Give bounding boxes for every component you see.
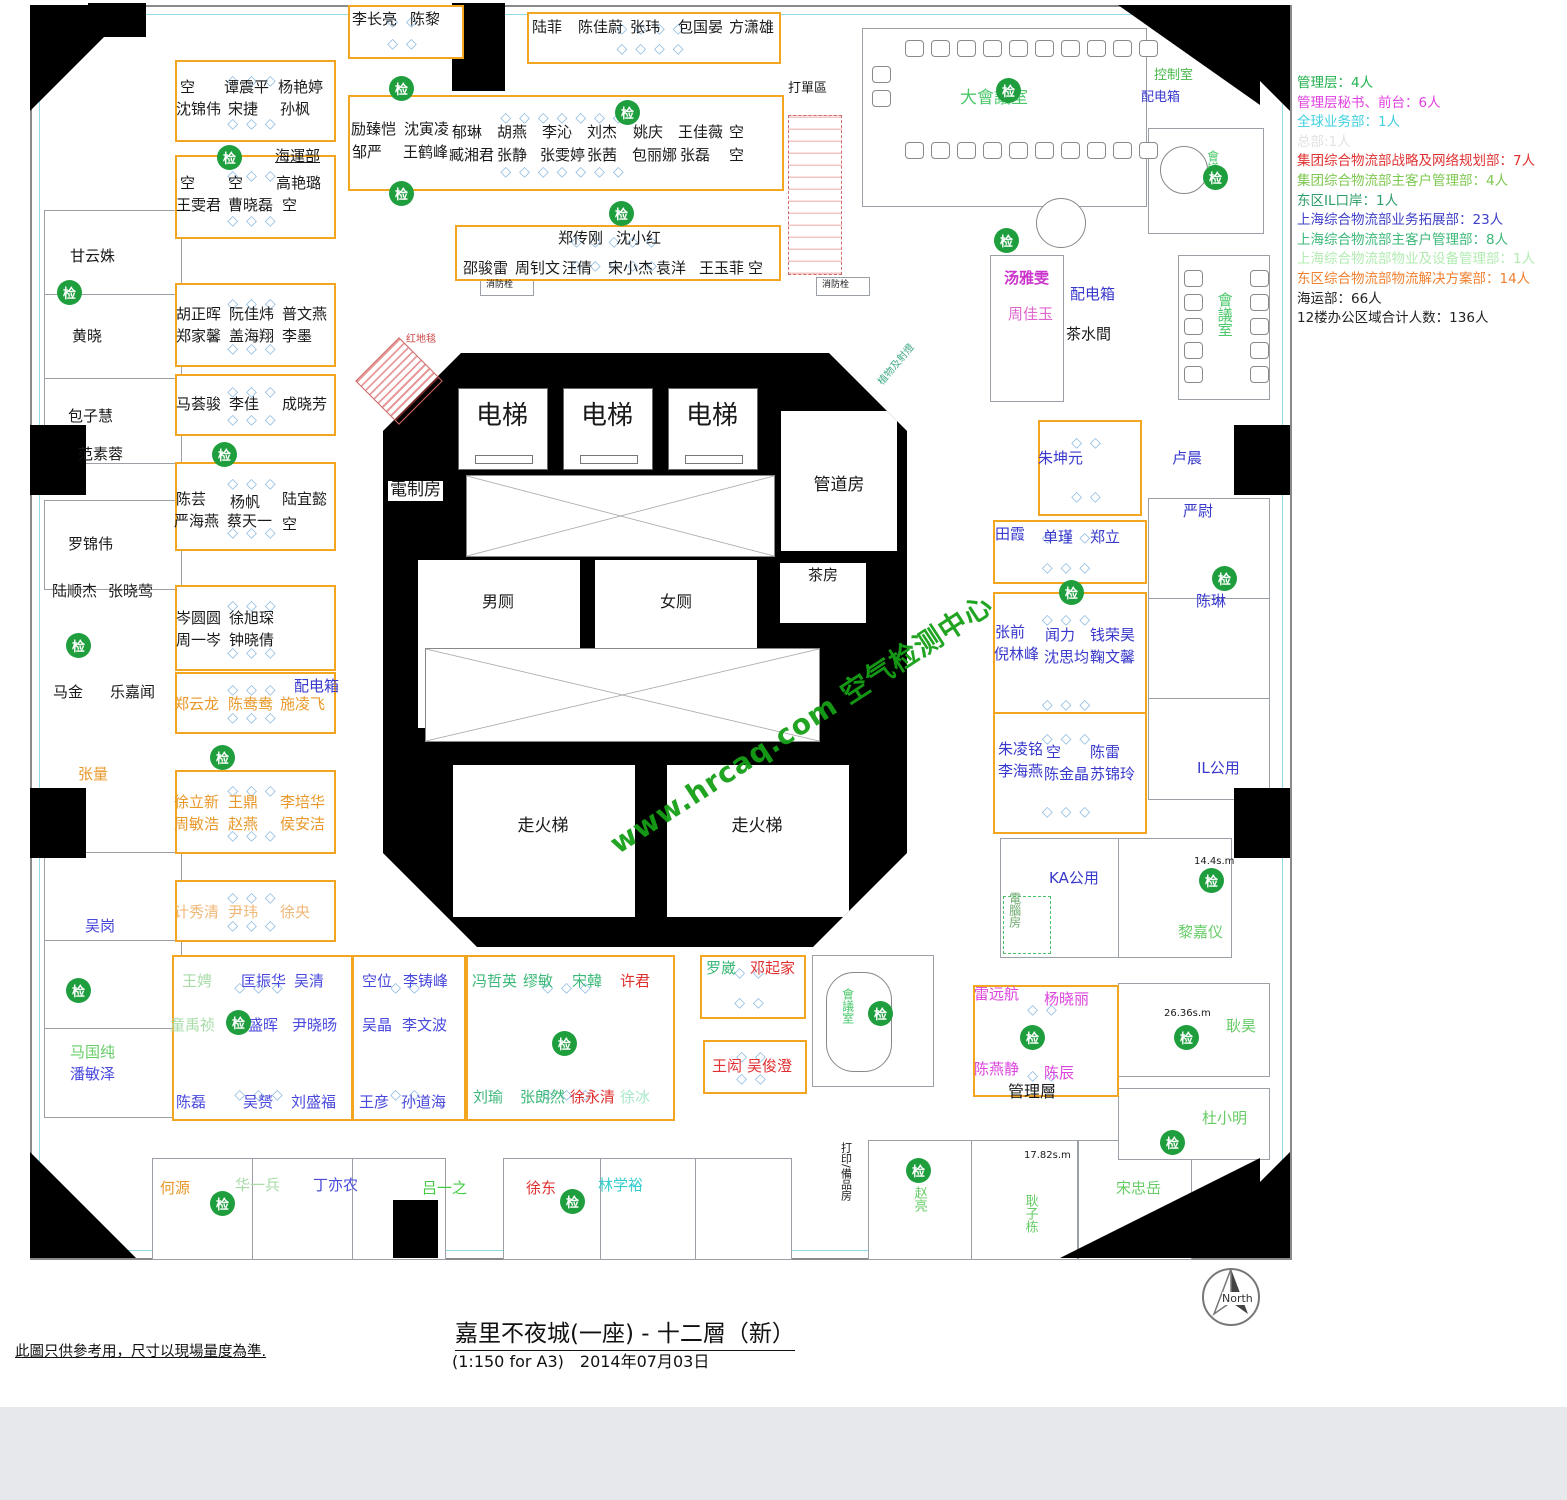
plan-label: 陈磊: [176, 1095, 206, 1111]
legend-item: 12楼办公区域合计人数：136人: [1297, 309, 1565, 329]
plan-label: 胡正晖: [176, 307, 221, 323]
office-room: [503, 1158, 602, 1260]
plan-label: 张量: [78, 767, 108, 783]
legend-item: 全球业务部：1人: [1297, 113, 1565, 133]
plan-label: 赵亮: [912, 1186, 926, 1212]
plan-label: 郑立: [1090, 530, 1120, 546]
footer-strip: [0, 1407, 1567, 1500]
plan-label: 严尉: [1183, 504, 1213, 520]
inspection-badge: 检: [994, 228, 1019, 253]
plan-label: 吴赟: [243, 1095, 273, 1111]
chair-diamond-icons: ◇◇◇: [995, 804, 1145, 820]
plan-label: 杨艳婷: [278, 80, 323, 96]
chair-icon: [1184, 366, 1203, 383]
plan-label: 26.36s.m: [1164, 1009, 1211, 1020]
plan-label: 陈辰: [1044, 1066, 1074, 1082]
plan-label: 郑家馨: [176, 329, 221, 345]
plan-label: 电梯: [458, 403, 546, 430]
chair-icon: [1139, 40, 1158, 57]
plan-label: 周佳玉: [1008, 307, 1053, 323]
plan-label: 计秀清: [174, 905, 219, 921]
plan-label: 管道房: [781, 477, 897, 495]
legend-item: 东区综合物流部物流解决方案部：14人: [1297, 270, 1565, 290]
plan-label: 茶水間: [1066, 327, 1111, 343]
chair-icon: [1035, 40, 1054, 57]
plan-label: 陈金晶: [1044, 767, 1089, 783]
plan-label: 郑云龙: [174, 697, 219, 713]
chair-icon: [1087, 142, 1106, 159]
chair-icon: [905, 142, 924, 159]
plan-label: 徐冰: [620, 1090, 650, 1106]
plan-label: 黄晓: [72, 329, 102, 345]
office-room: [1118, 1088, 1270, 1160]
plan-label: 陈芸: [176, 492, 206, 508]
plan-label: 李培华: [280, 795, 325, 811]
chair-icon: [1009, 40, 1028, 57]
plan-label: 吴俊澄: [747, 1059, 792, 1075]
plan-label: 刘盛福: [291, 1095, 336, 1111]
plan-label: 电梯: [668, 403, 756, 430]
round-table: [1160, 146, 1208, 194]
plan-label: 空: [282, 517, 297, 533]
plan-label: 電腦房: [1008, 892, 1021, 928]
legend-item: 集团综合物流部战略及网络规划部：7人: [1297, 152, 1565, 172]
plan-label: 控制室: [1154, 69, 1193, 83]
inspection-badge: 检: [1203, 165, 1228, 190]
plan-label: 杨帆: [230, 495, 260, 511]
plan-label: 陈佳蔚: [578, 20, 623, 36]
fire-stair: [453, 765, 635, 917]
legend-item: 管理层：4人: [1297, 74, 1565, 94]
column-block: [1234, 425, 1290, 495]
chair-diamond-icons: ◇◇◇: [995, 697, 1145, 713]
plan-label: 王鼎: [228, 795, 258, 811]
office-room: [152, 1158, 254, 1260]
plan-label: 配电箱: [1070, 287, 1115, 303]
plan-label: 阮佳炜: [229, 307, 274, 323]
plan-label: 张朗然: [520, 1090, 565, 1106]
north-label: North: [1222, 1292, 1253, 1305]
inspection-badge: 检: [1174, 1025, 1199, 1050]
plan-label: 普文燕: [282, 307, 327, 323]
plan-label: 张静: [497, 148, 527, 164]
plan-label: 王鹤峰: [403, 145, 448, 161]
plan-label: 谭震平: [224, 80, 269, 96]
plan-label: 空: [282, 198, 297, 214]
plan-label: 李沁: [542, 125, 572, 141]
plan-label: 林学裕: [598, 1178, 643, 1194]
plan-label: 17.82s.m: [1024, 1151, 1071, 1162]
print-area-cabinets: [788, 115, 842, 275]
inspection-badge: 检: [210, 745, 235, 770]
chair-diamond-icons: ◇◇: [350, 36, 462, 52]
plan-label: 赵燕: [228, 817, 258, 833]
plan-label: 消防栓: [822, 281, 849, 290]
inspection-badge: 检: [389, 181, 414, 206]
floor-plan-page: www.hrcaq.com 空气检测中心 管理层：4人管理层秘书、前台：6人全球…: [0, 0, 1567, 1500]
plan-label: 周钊文: [515, 261, 560, 277]
chair-row: [905, 40, 1158, 57]
chair-diamond-icons: ◇◇: [1040, 489, 1140, 505]
column-block: [1234, 788, 1290, 858]
plan-label: 陈雷: [1090, 745, 1120, 761]
legend-item: 集团综合物流部主客户管理部：4人: [1297, 172, 1565, 192]
column-block: [30, 788, 86, 858]
legend-item: 上海综合物流部物业及设备管理部：1人: [1297, 250, 1565, 270]
chair-icon: [1250, 366, 1269, 383]
chair-icon: [1250, 342, 1269, 359]
plan-label: 汤雅雯: [1004, 271, 1049, 287]
plan-label: 陈黎: [410, 12, 440, 28]
chair-icon: [1250, 294, 1269, 311]
plan-label: 缪敏: [523, 974, 553, 990]
chair-icon: [1061, 40, 1080, 57]
inspection-badge: 检: [226, 1010, 251, 1035]
plan-label: 女厕: [595, 594, 757, 611]
plan-label: 沈锦伟: [176, 102, 221, 118]
plan-label: 闻力: [1045, 628, 1075, 644]
inspection-badge: 检: [615, 100, 640, 125]
plan-label: 耿昊: [1226, 1019, 1256, 1035]
desk-pod: ◇◇◇◇◇◇: [175, 283, 336, 367]
plan-label: 田霞: [995, 527, 1025, 543]
chair-icon: [931, 40, 950, 57]
inspection-badge: 检: [66, 633, 91, 658]
plan-label: 打單區: [788, 82, 827, 96]
plan-label: 苏锦玲: [1090, 767, 1135, 783]
plan-label: 王玉菲: [699, 261, 744, 277]
legend-item: 海运部：66人: [1297, 290, 1565, 310]
plan-label: 會議室: [841, 988, 854, 1024]
plan-label: 红地毯: [406, 335, 436, 346]
plan-label: 郁琳: [452, 125, 482, 141]
chair-icon: [1009, 142, 1028, 159]
plan-label: 孙道海: [401, 1095, 446, 1111]
plan-label: 李文波: [402, 1018, 447, 1034]
plan-label: 尹晓旸: [292, 1018, 337, 1034]
inspection-badge: 检: [1160, 1130, 1185, 1155]
plan-label: 孙枫: [280, 102, 310, 118]
plan-label: 施凌飞: [280, 697, 325, 713]
plan-label: 邵骏雷: [463, 261, 508, 277]
chair-icon: [957, 40, 976, 57]
plan-label: 电梯: [563, 403, 651, 430]
plan-label: 杜小明: [1202, 1111, 1247, 1127]
plan-label: 岑圆圆: [176, 611, 221, 627]
inspection-badge: 检: [906, 1158, 931, 1183]
plan-label: 李长亮: [352, 12, 397, 28]
plan-label: 冯哲英: [472, 974, 517, 990]
plan-label: 王佳薇: [678, 125, 723, 141]
disclaimer-note: 此圖只供參考用，尺寸以現場量度為準.: [15, 1340, 266, 1361]
plan-label: 走火梯: [667, 818, 847, 836]
chair-row: [905, 142, 1158, 159]
legend-item: 总部:1人: [1297, 133, 1565, 153]
plan-label: 黎嘉仪: [1178, 925, 1223, 941]
chair-icon: [1061, 142, 1080, 159]
chair-diamond-icons: ◇◇◇: [177, 412, 334, 428]
plan-label: 空: [180, 176, 195, 192]
inspection-badge: 检: [609, 201, 634, 226]
column-block: [88, 3, 146, 37]
inspection-badge: 检: [57, 280, 82, 305]
plan-label: 空: [1046, 745, 1061, 761]
plan-label: 匡振华: [241, 974, 286, 990]
plan-label: 徐央: [280, 905, 310, 921]
plan-label: 侯安洁: [280, 817, 325, 833]
department-legend: 管理层：4人管理层秘书、前台：6人全球业务部：1人总部:1人集团综合物流部战略及…: [1297, 74, 1565, 329]
plan-label: 徐旭琛: [229, 611, 274, 627]
plan-label: 吴岗: [85, 919, 115, 935]
plan-label: 空位: [362, 974, 392, 990]
plan-label: 童禹祯: [170, 1018, 215, 1034]
desk-pod: ◇◇◇◇◇◇: [175, 770, 336, 854]
floor-plan-canvas: www.hrcaq.com 空气检测中心 管理层：4人管理层秘书、前台：6人全球…: [0, 0, 1567, 1405]
office-room: [600, 1158, 697, 1260]
chair-diamond-icons: ◇◇◇◇◇◇◇: [350, 164, 782, 180]
plan-label: 卢晨: [1172, 451, 1202, 467]
plan-label: 會議室: [1216, 292, 1232, 337]
inspection-badge: 检: [212, 442, 237, 467]
plan-label: 打印/備品房: [840, 1142, 852, 1201]
plan-label: 倪林峰: [994, 647, 1039, 663]
plan-label: 刘杰: [587, 125, 617, 141]
plan-label: 陆顺杰: [52, 584, 97, 600]
plan-label: 沈寅凌: [404, 122, 449, 138]
plan-label: 张磊: [680, 148, 710, 164]
plan-label: 邹严: [352, 145, 382, 161]
chair-icon: [1035, 142, 1054, 159]
plan-label: 方潇雄: [729, 20, 774, 36]
chair-icon: [1250, 270, 1269, 287]
office-room: [44, 294, 182, 380]
plan-label: 朱凌铭: [998, 742, 1043, 758]
inspection-badge: 检: [560, 1189, 585, 1214]
inspection-badge: 检: [389, 76, 414, 101]
plan-label: 包丽娜: [632, 148, 677, 164]
plan-label: 宋韓: [572, 974, 602, 990]
plan-label: 张茜: [587, 148, 617, 164]
plan-label: 消防栓: [486, 281, 513, 290]
inspection-badge: 检: [1212, 566, 1237, 591]
plan-label: 张玮: [630, 20, 660, 36]
plan-label: 宋忠岳: [1116, 1181, 1161, 1197]
plan-label: 马国纯: [70, 1045, 115, 1061]
chair-icon: [983, 40, 1002, 57]
legend-item: 上海综合物流部主客户管理部：8人: [1297, 231, 1565, 251]
chair-diamond-icons: ◇◇◇◇: [529, 41, 779, 57]
plan-label: 李佳: [229, 397, 259, 413]
chair-diamond-icons: ◇◇◇: [177, 116, 334, 132]
legend-item: 管理层秘书、前台：6人: [1297, 94, 1565, 114]
chair-icon: [931, 142, 950, 159]
plan-label: 徐立新: [174, 795, 219, 811]
desk-pod: ◇◇◇◇◇◇: [175, 585, 336, 671]
plan-label: 空: [729, 125, 744, 141]
office-room: [44, 940, 182, 1030]
chair-icon: [1087, 40, 1106, 57]
chair-diamond-icons: ◇◇◇: [177, 213, 334, 229]
plan-label: 严海燕: [174, 514, 219, 530]
plan-label: 刘瑜: [473, 1090, 503, 1106]
plan-label: 耿子栋: [1023, 1194, 1037, 1233]
chair-icon: [1250, 318, 1269, 335]
office-room: [695, 1158, 792, 1260]
plan-label: 成晓芳: [282, 397, 327, 413]
chair-icon: [1184, 318, 1203, 335]
chair-row: [872, 66, 891, 107]
plan-label: 姚庆: [633, 125, 663, 141]
plan-label: 单瑾: [1043, 530, 1073, 546]
plan-label: 何源: [160, 1181, 190, 1197]
plan-label: 14.4s.m: [1194, 857, 1234, 868]
inspection-badge: 检: [1020, 1025, 1045, 1050]
plan-label: 海運部: [275, 149, 320, 165]
plan-label: IL公用: [1197, 761, 1240, 777]
plan-label: 陈燕静: [974, 1062, 1019, 1078]
plan-label: 宋小杰: [608, 261, 653, 277]
plan-label: 蔡天一: [227, 514, 272, 530]
plan-label: 陈鸯鸯: [228, 697, 273, 713]
chair-icon: [905, 40, 924, 57]
inspection-badge: 检: [1059, 580, 1084, 605]
plan-label: 罗崴: [706, 961, 736, 977]
office-room: [1148, 698, 1270, 800]
inspection-badge: 检: [996, 78, 1021, 103]
inspection-badge: 检: [210, 1191, 235, 1216]
chair-icon: [1184, 342, 1203, 359]
plan-label: 空: [228, 176, 243, 192]
plan-label: 钟晓倩: [229, 633, 274, 649]
plan-label: 吕一之: [422, 1181, 467, 1197]
plan-label: 電制房: [388, 481, 443, 501]
plan-label: 曹晓磊: [228, 198, 273, 214]
plan-label: 乐嘉闻: [110, 685, 155, 701]
plan-label: 钱荣昊: [1090, 628, 1135, 644]
chair-icon: [1184, 270, 1203, 287]
chair-row: [1250, 270, 1269, 383]
plan-label: 李海燕: [998, 764, 1043, 780]
plan-label: 茶房: [780, 568, 866, 584]
plan-label: 高艳璐: [276, 176, 321, 192]
plan-label: 沈小红: [616, 231, 661, 247]
plan-label: 郑传刚: [558, 231, 603, 247]
chair-icon: [872, 66, 891, 83]
inspection-badge: 检: [66, 978, 91, 1003]
plan-label: 朱坤元: [1038, 451, 1083, 467]
chair-icon: [1113, 40, 1132, 57]
chair-row: [1184, 270, 1203, 383]
plan-label: 马金: [53, 685, 83, 701]
plan-label: 李墨: [282, 329, 312, 345]
chair-icon: [957, 142, 976, 159]
plan-label: KA公用: [1049, 871, 1099, 887]
inspection-badge: 检: [1199, 868, 1224, 893]
plan-label: 汪倩: [562, 261, 592, 277]
chair-icon: [872, 90, 891, 107]
plan-label: 罗锦伟: [68, 537, 113, 553]
plan-label: 尹玮: [228, 905, 258, 921]
plan-label: 周敏浩: [174, 817, 219, 833]
plan-label: 张雯婷: [540, 148, 585, 164]
plan-label: 空: [748, 261, 763, 277]
plan-label: 张晓莺: [108, 584, 153, 600]
plan-label: 杨晓丽: [1044, 992, 1089, 1008]
chair-icon: [1184, 294, 1203, 311]
chair-icon: [1113, 142, 1132, 159]
plan-label: 甘云姝: [70, 249, 115, 265]
plan-label: 吴晶: [362, 1018, 392, 1034]
desk-pod: ◇◇◇◇: [1038, 420, 1142, 516]
plan-label: 宋捷: [228, 102, 258, 118]
inspection-badge: 检: [552, 1031, 577, 1056]
plan-label: 管理層: [1008, 1084, 1056, 1101]
chair-diamond-icons: ◇◇: [702, 995, 804, 1011]
lobby-crossed-area: [466, 475, 775, 557]
plan-label: 邓起家: [750, 961, 795, 977]
plan-label: 沈思均: [1044, 650, 1089, 666]
plan-label: 配电箱: [1141, 91, 1180, 105]
plan-label: 李铸峰: [403, 974, 448, 990]
chair-diamond-icons: ◇◇◇: [995, 560, 1145, 576]
plan-label: 袁洋: [656, 261, 686, 277]
plan-label: 盛晖: [248, 1018, 278, 1034]
plan-label: 盖海翔: [229, 329, 274, 345]
plan-label: 包国晏: [678, 20, 723, 36]
chair-icon: [1139, 142, 1158, 159]
plan-label: 男厕: [418, 594, 578, 611]
legend-item: 东区IL口岸：1人: [1297, 192, 1565, 212]
plan-label: 励臻恺: [351, 122, 396, 138]
plan-label: 包子慧: [68, 409, 113, 425]
plan-label: 王娉: [182, 974, 212, 990]
plan-label: 潘敏泽: [70, 1067, 115, 1083]
plan-label: 张前: [995, 625, 1025, 641]
plan-label: 华一兵: [235, 1178, 280, 1194]
plan-label: 配电箱: [294, 679, 339, 695]
round-table: [1036, 198, 1086, 248]
plan-label: 胡燕: [497, 125, 527, 141]
plan-label: 王闳: [712, 1059, 742, 1075]
legend-item: 上海综合物流部业务拓展部：23人: [1297, 211, 1565, 231]
plan-label: 陈琳: [1196, 594, 1226, 610]
plan-label: 空: [729, 148, 744, 164]
plan-label: 空: [180, 80, 195, 96]
office-room: [252, 1158, 354, 1260]
plan-label: 许君: [620, 974, 650, 990]
plan-label: 陆菲: [532, 20, 562, 36]
inspection-badge: 检: [868, 1001, 893, 1026]
drawing-title: 嘉里不夜城(一座) - 十二層（新）: [455, 1314, 795, 1351]
plan-label: 雷远航: [974, 987, 1019, 1003]
plan-label: 王彦: [359, 1095, 389, 1111]
office-room: [1148, 598, 1270, 700]
plan-label: 王雯君: [176, 198, 221, 214]
chair-icon: [983, 142, 1002, 159]
plan-label: 周一岑: [176, 633, 221, 649]
plan-label: 吴清: [294, 974, 324, 990]
inspection-badge: 检: [217, 145, 242, 170]
plan-label: 马荟骏: [176, 397, 221, 413]
plan-label: 徐东: [526, 1181, 556, 1197]
drawing-scale-date: (1:150 for A3) 2014年07月03日: [452, 1348, 709, 1372]
plan-label: 徐永清: [570, 1090, 615, 1106]
plan-label: 鞠文馨: [1090, 650, 1135, 666]
plan-label: 范素蓉: [78, 447, 123, 463]
plan-label: 陆宜懿: [282, 492, 327, 508]
plan-label: 臧湘君: [449, 148, 494, 164]
plan-label: 丁亦农: [313, 1178, 358, 1194]
